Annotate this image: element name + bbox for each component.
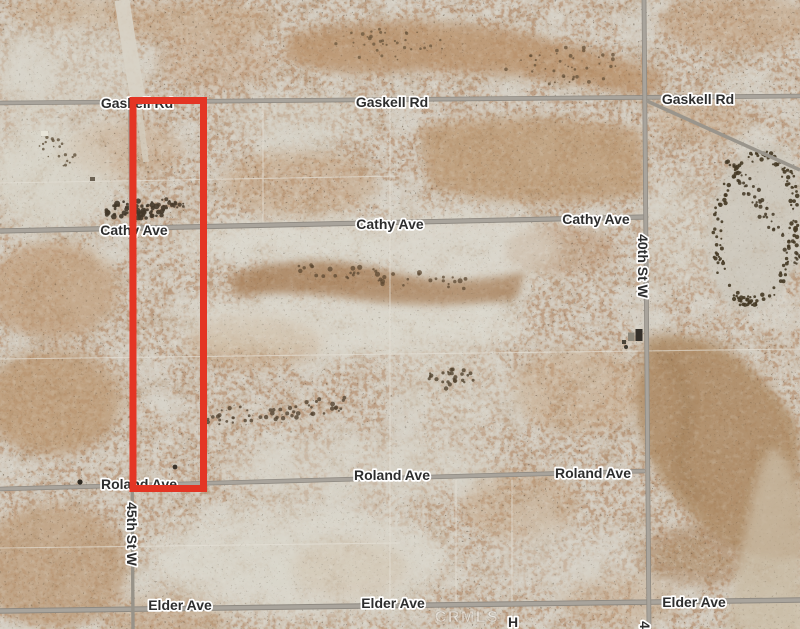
svg-text:H: H	[508, 614, 518, 629]
svg-text:Roland Ave: Roland Ave	[555, 465, 631, 481]
svg-text:Cathy Ave: Cathy Ave	[356, 216, 424, 232]
svg-text:Gaskell Rd: Gaskell Rd	[662, 91, 734, 107]
svg-text:Elder Ave: Elder Ave	[361, 595, 425, 611]
svg-text:Elder Ave: Elder Ave	[148, 597, 212, 613]
svg-text:40th St W: 40th St W	[635, 234, 651, 299]
svg-text:Elder Ave: Elder Ave	[662, 594, 726, 610]
svg-text:Cathy Ave: Cathy Ave	[562, 211, 630, 227]
svg-text:Gaskell Rd: Gaskell Rd	[356, 94, 428, 110]
svg-text:40th St W: 40th St W	[637, 621, 653, 629]
svg-text:Roland Ave: Roland Ave	[354, 467, 430, 483]
svg-text:45th St W: 45th St W	[124, 502, 140, 567]
svg-text:CRMLS: CRMLS	[435, 609, 499, 626]
